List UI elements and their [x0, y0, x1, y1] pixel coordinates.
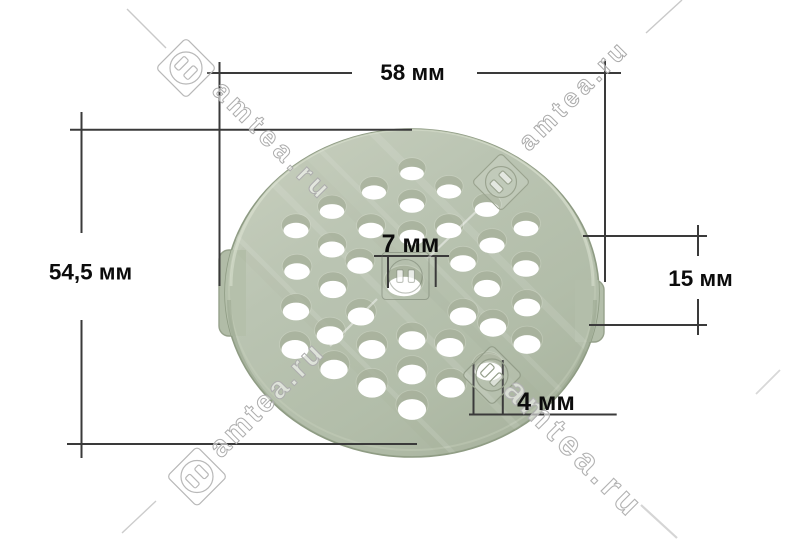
svg-text:7 мм: 7 мм [382, 230, 440, 258]
svg-text:58 мм: 58 мм [380, 60, 445, 85]
svg-text:4 мм: 4 мм [517, 388, 575, 416]
svg-text:54,5 мм: 54,5 мм [49, 260, 132, 285]
svg-text:15 мм: 15 мм [668, 266, 733, 291]
